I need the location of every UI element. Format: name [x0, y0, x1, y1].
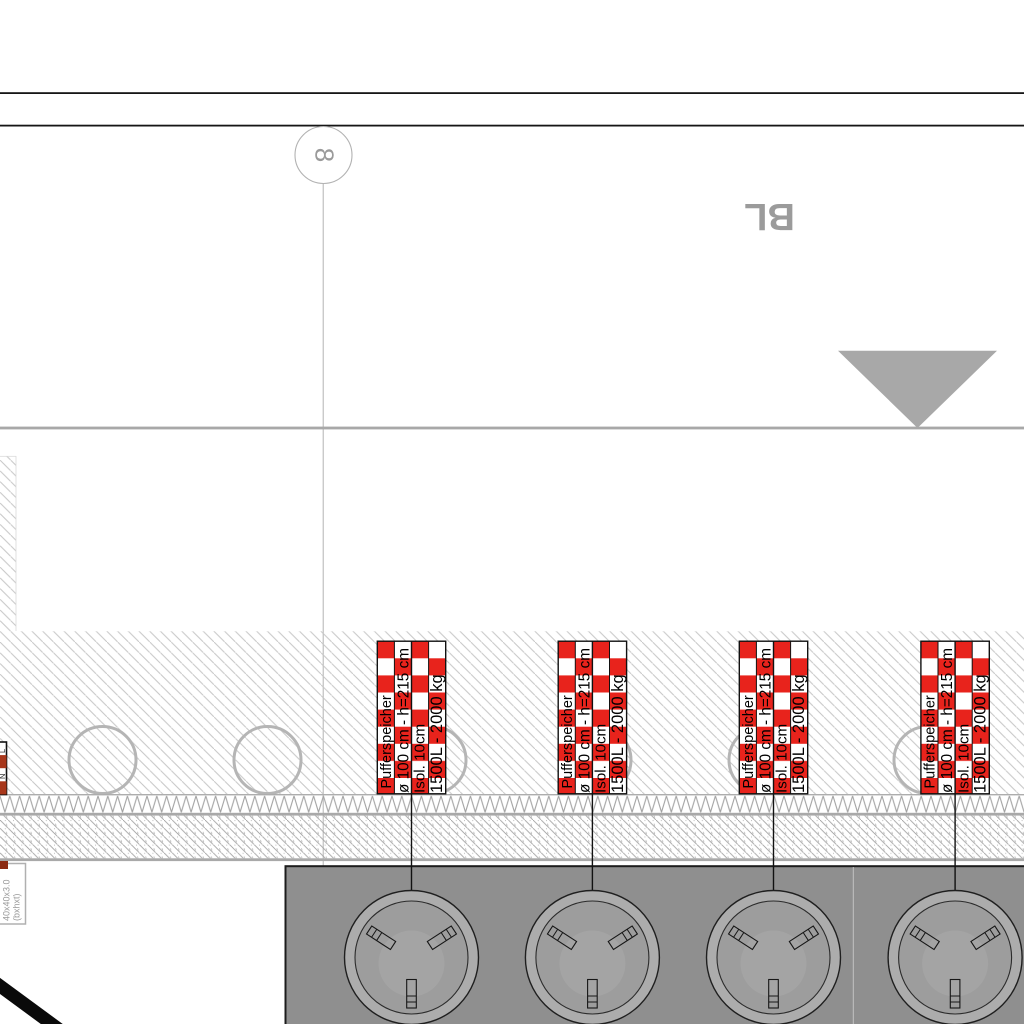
svg-text:Pufferspeicher: Pufferspeicher [379, 695, 395, 788]
svg-text:1500L - 2000 kg: 1500L - 2000 kg [790, 674, 808, 793]
svg-text:1500L - 2000 kg: 1500L - 2000 kg [428, 674, 446, 793]
svg-text:Isol. 10cm: Isol. 10cm [955, 724, 972, 793]
svg-text:N: N [0, 774, 7, 779]
svg-text:ø 100 cm - h=215 cm: ø 100 cm - h=215 cm [939, 648, 956, 793]
svg-text:Isol. 10cm: Isol. 10cm [774, 724, 791, 793]
svg-text:Pufferspeicher: Pufferspeicher [923, 695, 939, 788]
svg-text:Isol. 10cm: Isol. 10cm [412, 724, 429, 793]
svg-text:40x40x3.0: 40x40x3.0 [2, 879, 12, 921]
svg-text:ø 100 cm - h=215 cm: ø 100 cm - h=215 cm [396, 648, 413, 793]
svg-text:Pufferspeicher: Pufferspeicher [741, 695, 757, 788]
svg-text:L: L [0, 749, 7, 753]
svg-text:Isol. 10cm: Isol. 10cm [593, 724, 610, 793]
svg-text:Pufferspeicher: Pufferspeicher [560, 695, 576, 788]
svg-text:1500L - 2000 kg: 1500L - 2000 kg [972, 674, 990, 793]
svg-text:8: 8 [310, 148, 340, 162]
svg-text:ø 100 cm - h=215 cm: ø 100 cm - h=215 cm [576, 648, 593, 793]
svg-text:(bxhxt): (bxhxt) [12, 893, 22, 921]
svg-text:BL: BL [744, 195, 795, 237]
svg-text:ø 100 cm - h=215 cm: ø 100 cm - h=215 cm [758, 648, 775, 793]
svg-text:1500L - 2000 kg: 1500L - 2000 kg [609, 674, 627, 793]
